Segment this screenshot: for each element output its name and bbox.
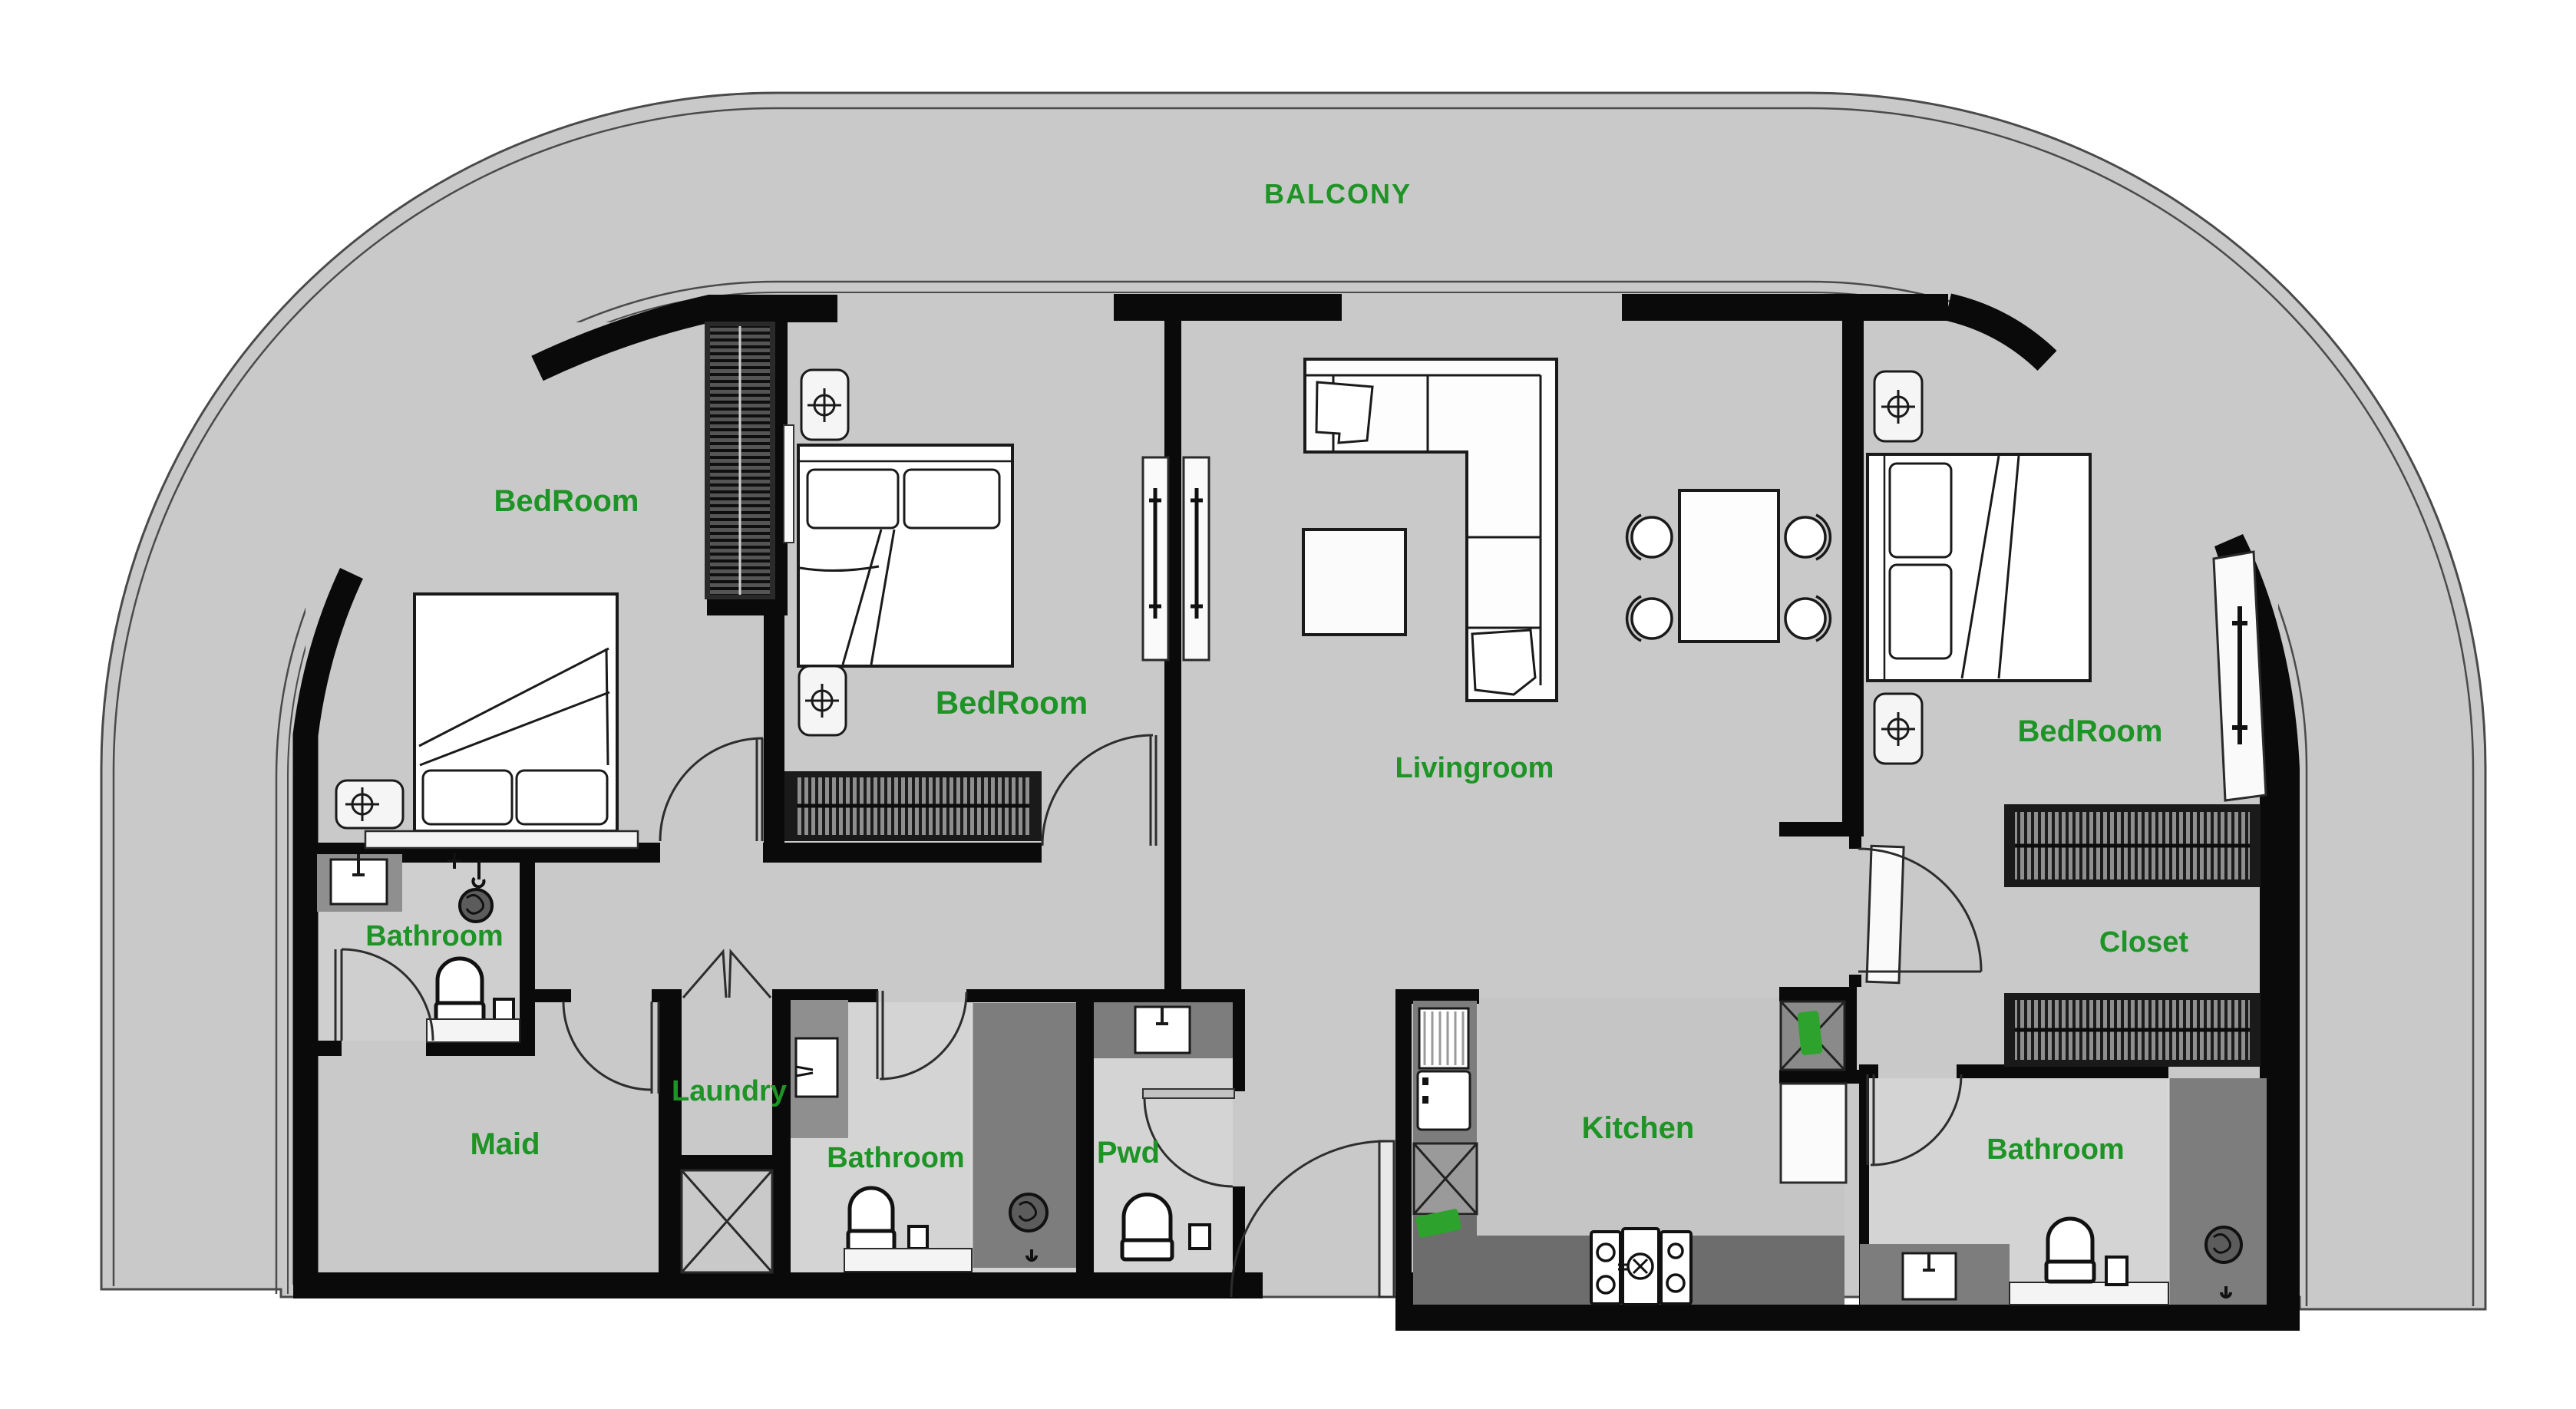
svg-text:BedRoom: BedRoom <box>494 484 639 518</box>
svg-text:Closet: Closet <box>2099 926 2188 959</box>
svg-text:Maid: Maid <box>470 1127 540 1161</box>
svg-text:Livingroom: Livingroom <box>1395 752 1554 784</box>
svg-text:Bathroom: Bathroom <box>827 1142 964 1174</box>
svg-text:BALCONY: BALCONY <box>1264 178 1412 210</box>
svg-text:Bathroom: Bathroom <box>1986 1133 2124 1166</box>
svg-text:Laundry: Laundry <box>672 1075 787 1107</box>
svg-text:BedRoom: BedRoom <box>936 685 1088 721</box>
svg-text:Pwd: Pwd <box>1097 1136 1160 1170</box>
svg-text:Bathroom: Bathroom <box>365 920 503 952</box>
svg-text:Kitchen: Kitchen <box>1582 1111 1695 1145</box>
svg-text:BedRoom: BedRoom <box>2018 714 2163 748</box>
